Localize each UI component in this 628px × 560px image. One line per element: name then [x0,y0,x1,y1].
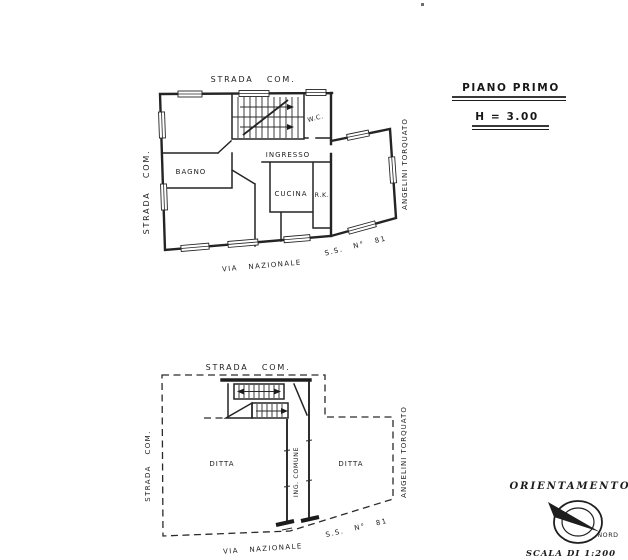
window [306,90,326,96]
first-floor-plan: STRADA COM. STRADA COM. VIA NAZIONALE S.… [142,75,409,273]
scale-label: SCALA DI 1:200 [526,549,616,559]
stairwell-walls [228,384,307,417]
area-label-ditta-right: DITTA [338,460,363,468]
compass-icon [548,501,602,543]
lower-flight-treads [257,404,282,417]
window [347,130,370,140]
neighbor-label-right: ANGELINI TORQUATO [401,118,409,210]
scan-speck [421,3,424,6]
title-block: PIANO PRIMO H = 3.00 [452,82,566,130]
window [348,221,377,234]
upper-flight-arrow-right [274,389,281,395]
stair-landing-triangle [226,403,252,418]
room-label-bagno: BAGNO [176,168,207,176]
window [239,91,269,97]
stair-arrow-up-head [287,104,294,110]
ground-floor-plan: STRADA COM. STRADA COM. DITTA DITTA ING.… [144,363,408,556]
threshold-left [276,521,294,525]
road-label-ss81: S.S. N° 81 [324,235,387,258]
area-label-ing-comune: ING. COMUNE [293,447,300,497]
staircase [226,384,288,418]
room-label-rk: R.K. [315,192,330,199]
room-label-ingresso: INGRESSO [266,151,310,159]
room-label-cucina: CUCINA [275,190,308,198]
street-label-bottom: VIA NAZIONALE [223,542,303,556]
window [284,235,310,243]
street-label-top: STRADA COM. [211,75,296,84]
upper-flight-arrow-left [237,389,244,395]
window [178,91,202,97]
threshold-mark [282,528,292,530]
neighbor-label-right: ANGELINI TORQUATO [400,406,408,498]
window [181,243,209,251]
orientation-block: ORIENTAMENTO NORD SCALA DI 1:200 [509,481,628,559]
orientation-title: ORIENTAMENTO [509,481,628,492]
stair-arrow-down-head [287,124,294,130]
north-label: NORD [597,532,618,539]
room-label-wc: W.C. [307,113,325,124]
height-note: H = 3.00 [475,111,539,123]
street-label-bottom: VIA NAZIONALE [222,259,302,274]
street-label-left: STRADA COM. [142,150,151,235]
plan-drawing: STRADA COM. STRADA COM. VIA NAZIONALE S.… [0,0,628,560]
threshold-right [301,517,319,521]
window [159,112,166,138]
staircase [232,97,304,138]
street-label-left: STRADA COM. [144,430,152,501]
road-label-ss81: S.S. N° 81 [325,517,389,539]
area-label-ditta-left: DITTA [209,460,234,468]
floor-title: PIANO PRIMO [462,82,560,94]
window [161,184,168,210]
lower-flight-arrow-head [281,408,288,414]
window [228,239,258,247]
scanned-plan-sheet: STRADA COM. STRADA COM. VIA NAZIONALE S.… [0,0,628,560]
window [389,157,397,183]
street-label-top: STRADA COM. [206,363,291,372]
